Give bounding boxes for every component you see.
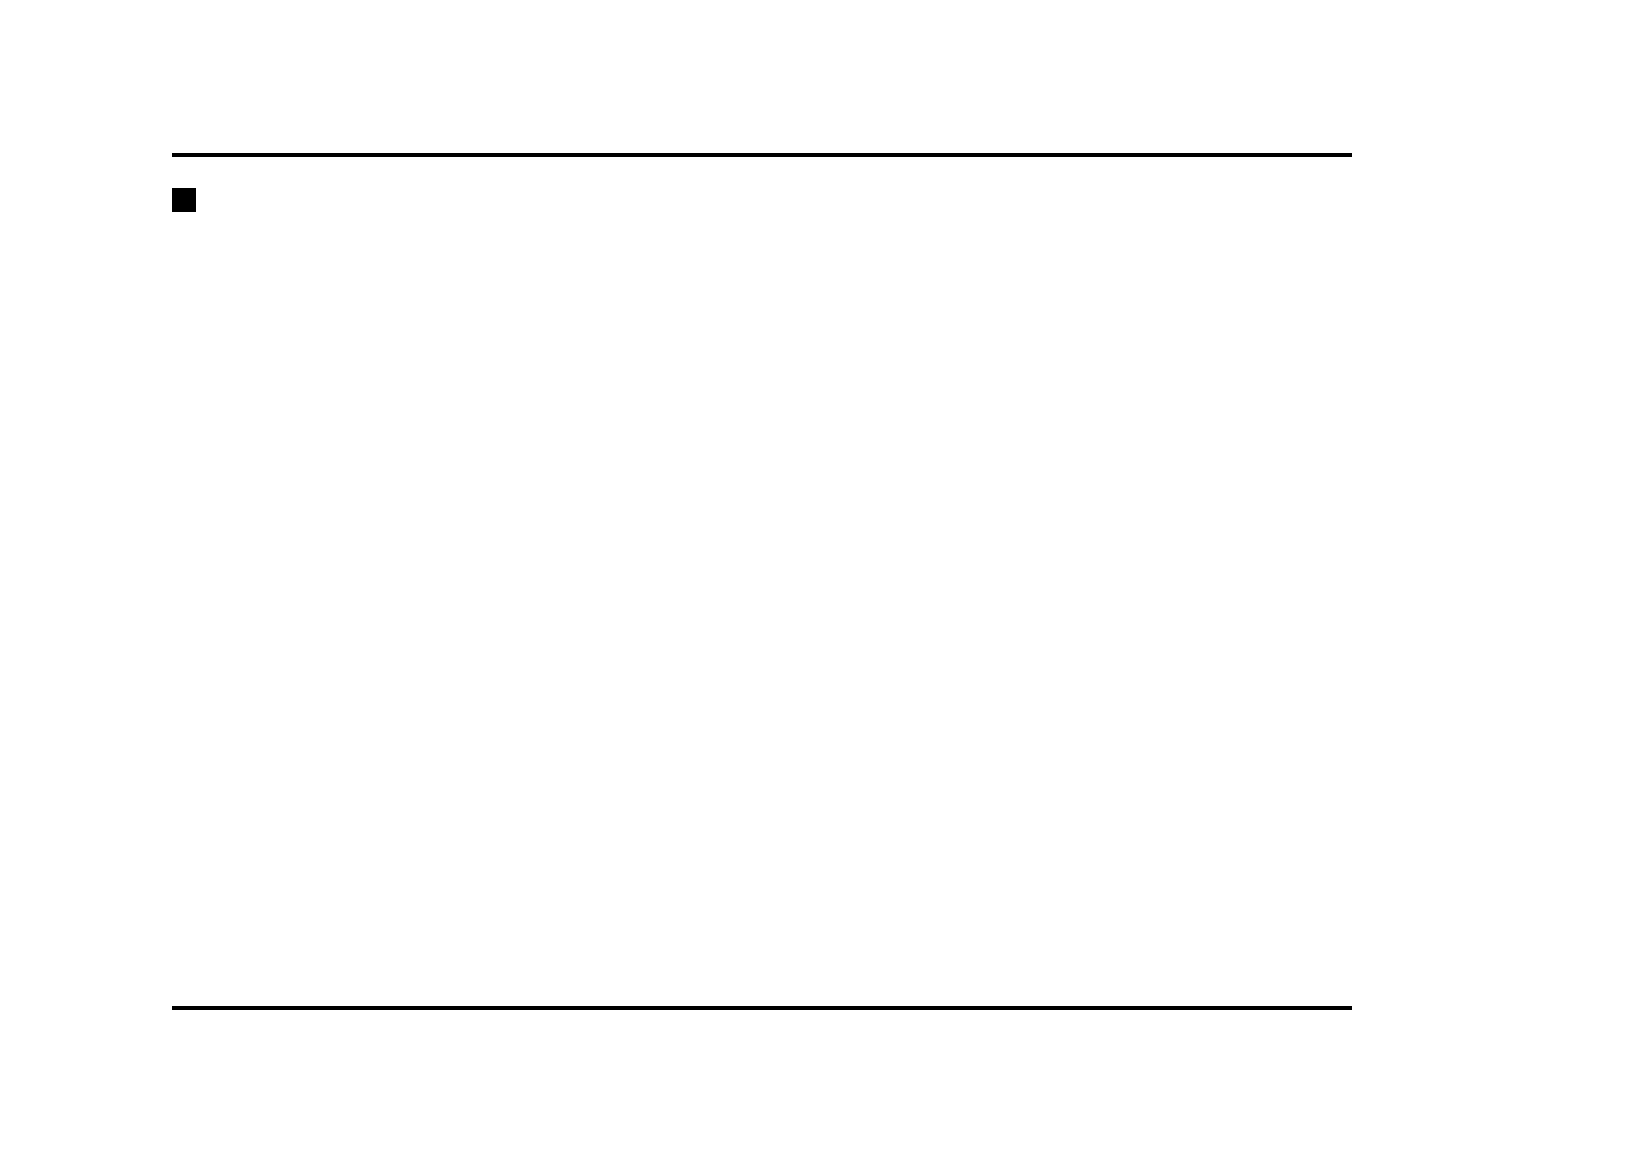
combination-meter-figure bbox=[0, 0, 1650, 1165]
bottom-rule bbox=[172, 1006, 1352, 1010]
manual-page bbox=[0, 0, 1650, 1165]
